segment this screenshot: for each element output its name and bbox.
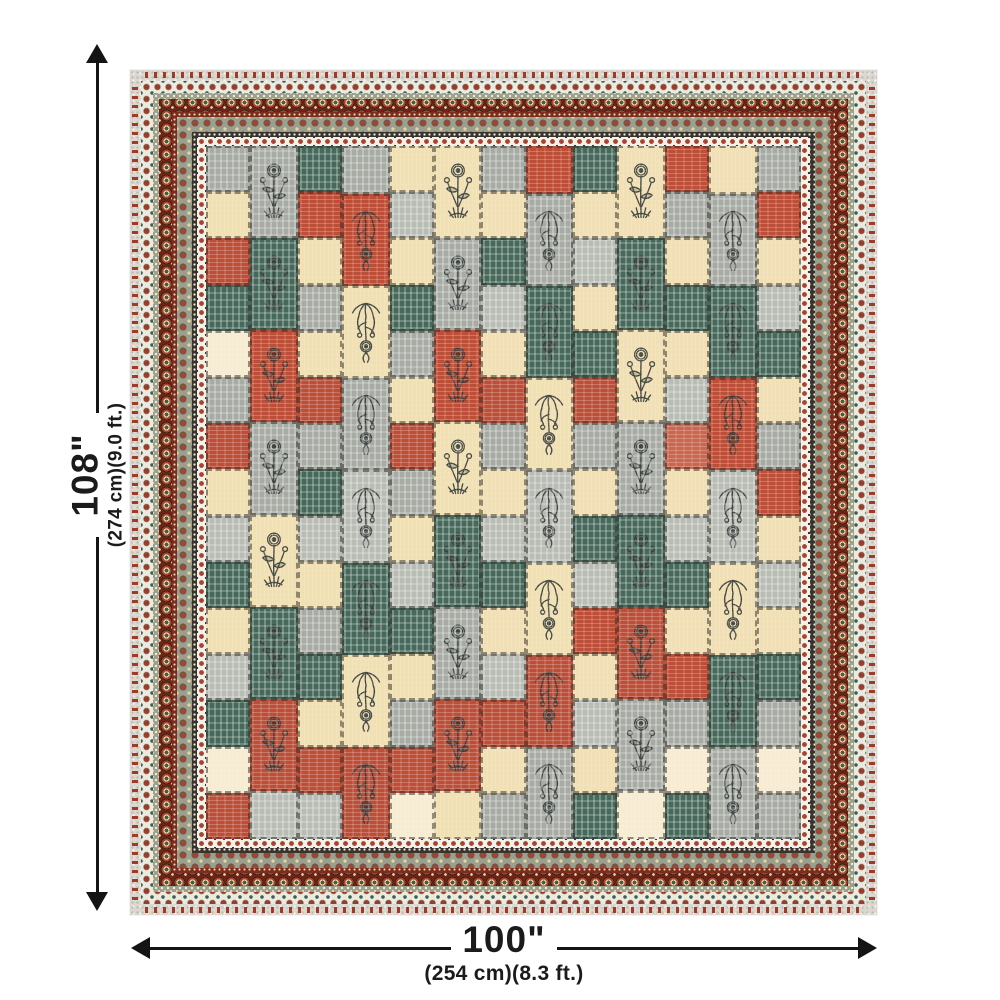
quilt-block — [390, 793, 434, 839]
quilt-column — [526, 146, 574, 839]
quilt-block — [434, 238, 482, 330]
hanging-floral-motif-icon — [348, 293, 383, 372]
quilt-block — [390, 469, 434, 515]
hanging-floral-motif-icon — [532, 385, 567, 464]
quilt-column — [434, 146, 482, 839]
quilt-block — [573, 608, 617, 654]
height-dimension-label: 108" (274 cm)(9.0 ft.) — [67, 403, 128, 547]
border-band-tassels — [141, 81, 866, 904]
quilt-block — [298, 469, 342, 515]
quilt-block — [206, 331, 250, 377]
quilt-block — [573, 654, 617, 700]
quilt-block — [481, 192, 525, 238]
quilt-block — [573, 285, 617, 331]
quilt-block — [250, 699, 298, 791]
quilt-column — [481, 146, 525, 839]
quilt-block — [757, 285, 801, 331]
quilt-block — [757, 238, 801, 284]
quilt-block — [250, 791, 298, 839]
quilt-block — [206, 377, 250, 423]
quilt-block — [206, 192, 250, 238]
hanging-floral-motif-icon — [348, 569, 383, 648]
quilt-block — [526, 563, 574, 655]
quilt-block — [206, 146, 250, 192]
width-detail: (254 cm)(8.3 ft.) — [424, 962, 583, 986]
quilt-block — [709, 286, 757, 378]
fringe-top — [143, 72, 864, 78]
quilt-block — [573, 146, 617, 192]
flower-bouquet-motif-icon — [440, 429, 475, 508]
flower-bouquet-motif-icon — [257, 429, 292, 508]
hanging-floral-motif-icon — [348, 200, 383, 279]
quilt-block — [342, 470, 390, 562]
quilt-block — [298, 146, 342, 192]
quilt-block — [206, 562, 250, 608]
flower-bouquet-motif-icon — [440, 245, 475, 324]
quilt-block — [665, 146, 709, 192]
flower-bouquet-motif-icon — [440, 705, 475, 784]
quilt-block — [526, 146, 574, 194]
quilt-block — [617, 238, 665, 330]
flower-bouquet-motif-icon — [257, 337, 292, 416]
quilt-block — [481, 747, 525, 793]
quilt-block — [665, 238, 709, 284]
quilt-block — [617, 791, 665, 839]
quilt-block — [481, 562, 525, 608]
height-arrow-line-bottom — [96, 537, 99, 893]
quilt-block — [665, 285, 709, 331]
quilt-block — [665, 608, 709, 654]
quilt-block — [434, 607, 482, 699]
quilt-block — [434, 791, 482, 839]
quilt-block — [573, 423, 617, 469]
quilt-block — [390, 516, 434, 562]
hanging-floral-motif-icon — [716, 200, 751, 279]
quilt-block — [298, 562, 342, 608]
quilt-block — [757, 192, 801, 238]
quilt-block — [481, 377, 525, 423]
quilt-block — [709, 747, 757, 839]
quilt-block — [206, 238, 250, 284]
hanging-floral-motif-icon — [348, 661, 383, 740]
quilt-column — [250, 146, 298, 839]
quilt-block — [617, 515, 665, 607]
quilt-column — [757, 146, 801, 839]
height-detail: (274 cm)(9.0 ft.) — [106, 403, 128, 547]
quilt-block — [665, 747, 709, 793]
quilt-block — [342, 194, 390, 286]
flower-bouquet-motif-icon — [624, 245, 659, 324]
quilt-block — [573, 700, 617, 746]
quilt-block — [250, 146, 298, 238]
quilt-block — [757, 469, 801, 515]
quilt-column — [390, 146, 434, 839]
quilt-block — [298, 285, 342, 331]
quilt-block — [481, 654, 525, 700]
quilt-block — [573, 377, 617, 423]
width-dimension-label: 100" (254 cm)(8.3 ft.) — [424, 921, 583, 986]
quilt-block — [481, 423, 525, 469]
hanging-floral-motif-icon — [532, 293, 567, 372]
quilt-block — [206, 423, 250, 469]
quilt-field — [206, 146, 801, 839]
quilt-block — [250, 422, 298, 514]
flower-bouquet-motif-icon — [624, 613, 659, 692]
flower-bouquet-motif-icon — [257, 705, 292, 784]
quilt-block — [573, 562, 617, 608]
quilt-block — [298, 516, 342, 562]
quilt-block — [342, 146, 390, 194]
flower-bouquet-motif-icon — [624, 337, 659, 416]
quilt-block — [709, 378, 757, 470]
quilt-block — [526, 747, 574, 839]
flower-bouquet-motif-icon — [440, 337, 475, 416]
quilt-block — [526, 194, 574, 286]
quilt-block — [298, 654, 342, 700]
bedsheet-photo — [130, 70, 877, 915]
quilt-block — [434, 330, 482, 422]
flower-bouquet-motif-icon — [257, 521, 292, 600]
height-value: 108" — [67, 403, 104, 547]
quilt-block — [757, 423, 801, 469]
arrowhead-down-icon — [86, 892, 108, 911]
quilt-block — [206, 747, 250, 793]
hanging-floral-motif-icon — [716, 569, 751, 648]
hanging-floral-motif-icon — [716, 661, 751, 740]
quilt-block — [757, 516, 801, 562]
hanging-floral-motif-icon — [532, 661, 567, 740]
hanging-floral-motif-icon — [348, 385, 383, 464]
quilt-block — [757, 331, 801, 377]
quilt-block — [573, 469, 617, 515]
quilt-block — [573, 516, 617, 562]
quilt-block — [390, 700, 434, 746]
quilt-block — [390, 285, 434, 331]
border-band-maroon — [172, 112, 835, 873]
quilt-block — [617, 699, 665, 791]
quilt-block — [342, 655, 390, 747]
quilt-block — [298, 192, 342, 238]
flower-bouquet-motif-icon — [257, 245, 292, 324]
quilt-block — [526, 286, 574, 378]
quilt-block — [617, 146, 665, 238]
quilt-block — [757, 608, 801, 654]
quilt-block — [573, 192, 617, 238]
quilt-block — [342, 286, 390, 378]
quilt-block — [757, 747, 801, 793]
quilt-block — [665, 423, 709, 469]
border-band-zigzag — [197, 137, 810, 848]
quilt-block — [390, 423, 434, 469]
quilt-block — [481, 238, 525, 284]
quilt-block — [481, 516, 525, 562]
quilt-block — [709, 146, 757, 194]
border-band-rosettes — [159, 99, 848, 886]
quilt-block — [757, 562, 801, 608]
quilt-block — [665, 516, 709, 562]
quilt-block — [390, 377, 434, 423]
hanging-floral-motif-icon — [532, 569, 567, 648]
hanging-floral-motif-icon — [716, 385, 751, 464]
quilt-block — [665, 469, 709, 515]
quilt-block — [526, 378, 574, 470]
quilt-block — [665, 562, 709, 608]
product-dimension-image: 108" (274 cm)(9.0 ft.) 100" (254 cm)(8.3… — [0, 0, 1000, 1000]
quilt-block — [757, 793, 801, 839]
quilt-block — [481, 285, 525, 331]
quilt-block — [298, 793, 342, 839]
quilt-block — [665, 377, 709, 423]
border-band-dark-dots — [192, 132, 815, 853]
flower-bouquet-motif-icon — [257, 152, 292, 231]
width-value: 100" — [424, 921, 583, 958]
quilt-block — [298, 238, 342, 284]
border-band-diamond-lattice — [177, 117, 830, 868]
fringe-bottom — [143, 907, 864, 913]
quilt-column — [617, 146, 665, 839]
quilt-block — [250, 607, 298, 699]
quilt-block — [206, 654, 250, 700]
quilt-block — [206, 608, 250, 654]
quilt-block — [298, 747, 342, 793]
quilt-block — [709, 563, 757, 655]
quilt-block — [481, 469, 525, 515]
flower-bouquet-motif-icon — [440, 152, 475, 231]
quilt-column — [298, 146, 342, 839]
quilt-block — [573, 238, 617, 284]
quilt-block — [390, 747, 434, 793]
hanging-floral-motif-icon — [348, 753, 383, 832]
quilt-block — [434, 699, 482, 791]
quilt-block — [665, 331, 709, 377]
width-arrow-line-right — [557, 947, 860, 950]
quilt-block — [617, 607, 665, 699]
quilt-block — [709, 194, 757, 286]
quilt-block — [298, 377, 342, 423]
flower-bouquet-motif-icon — [257, 613, 292, 692]
quilt-block — [573, 793, 617, 839]
quilt-block — [250, 330, 298, 422]
quilt-block — [481, 331, 525, 377]
hanging-floral-motif-icon — [532, 753, 567, 832]
quilt-block — [206, 793, 250, 839]
height-arrow-line-top — [96, 61, 99, 413]
hanging-floral-motif-icon — [532, 477, 567, 556]
hanging-floral-motif-icon — [716, 293, 751, 372]
quilt-block — [390, 331, 434, 377]
quilt-block — [481, 608, 525, 654]
hanging-floral-motif-icon — [716, 753, 751, 832]
quilt-block — [298, 700, 342, 746]
quilt-block — [573, 747, 617, 793]
quilt-block — [206, 700, 250, 746]
quilt-block — [342, 563, 390, 655]
quilt-block — [390, 192, 434, 238]
flower-bouquet-motif-icon — [624, 429, 659, 508]
quilt-block — [481, 146, 525, 192]
hanging-floral-motif-icon — [532, 200, 567, 279]
flower-bouquet-motif-icon — [624, 521, 659, 600]
quilt-block — [390, 238, 434, 284]
quilt-block — [709, 470, 757, 562]
quilt-block — [206, 469, 250, 515]
hanging-floral-motif-icon — [348, 477, 383, 556]
width-arrow-line-left — [148, 947, 451, 950]
quilt-block — [481, 700, 525, 746]
quilt-block — [206, 516, 250, 562]
fringe-right — [869, 83, 875, 902]
quilt-block — [617, 330, 665, 422]
quilt-column — [206, 146, 250, 839]
flower-bouquet-motif-icon — [624, 152, 659, 231]
quilt-block — [390, 608, 434, 654]
quilt-block — [434, 515, 482, 607]
quilt-block — [342, 747, 390, 839]
fringe-left — [132, 83, 138, 902]
quilt-block — [709, 655, 757, 747]
quilt-block — [573, 331, 617, 377]
quilt-block — [665, 793, 709, 839]
quilt-block — [665, 654, 709, 700]
quilt-block — [526, 655, 574, 747]
quilt-block — [434, 422, 482, 514]
quilt-block — [390, 654, 434, 700]
quilt-block — [250, 515, 298, 607]
quilt-block — [390, 562, 434, 608]
quilt-column — [573, 146, 617, 839]
quilt-block — [342, 378, 390, 470]
border-band-sage-dots — [153, 93, 854, 892]
quilt-block — [481, 793, 525, 839]
quilt-column — [342, 146, 390, 839]
arrowhead-right-icon — [858, 937, 877, 959]
quilt-block — [757, 377, 801, 423]
flower-bouquet-motif-icon — [624, 705, 659, 784]
quilt-block — [757, 146, 801, 192]
flower-bouquet-motif-icon — [440, 613, 475, 692]
flower-bouquet-motif-icon — [440, 521, 475, 600]
quilt-block — [390, 146, 434, 192]
quilt-column — [665, 146, 709, 839]
quilt-block — [298, 331, 342, 377]
hanging-floral-motif-icon — [716, 477, 751, 556]
quilt-block — [526, 470, 574, 562]
quilt-block — [298, 608, 342, 654]
quilt-block — [250, 238, 298, 330]
quilt-block — [665, 192, 709, 238]
quilt-block — [757, 700, 801, 746]
quilt-block — [665, 700, 709, 746]
quilt-column — [709, 146, 757, 839]
quilt-block — [298, 423, 342, 469]
quilt-block — [757, 654, 801, 700]
quilt-block — [206, 285, 250, 331]
quilt-block — [434, 146, 482, 238]
quilt-block — [617, 422, 665, 514]
